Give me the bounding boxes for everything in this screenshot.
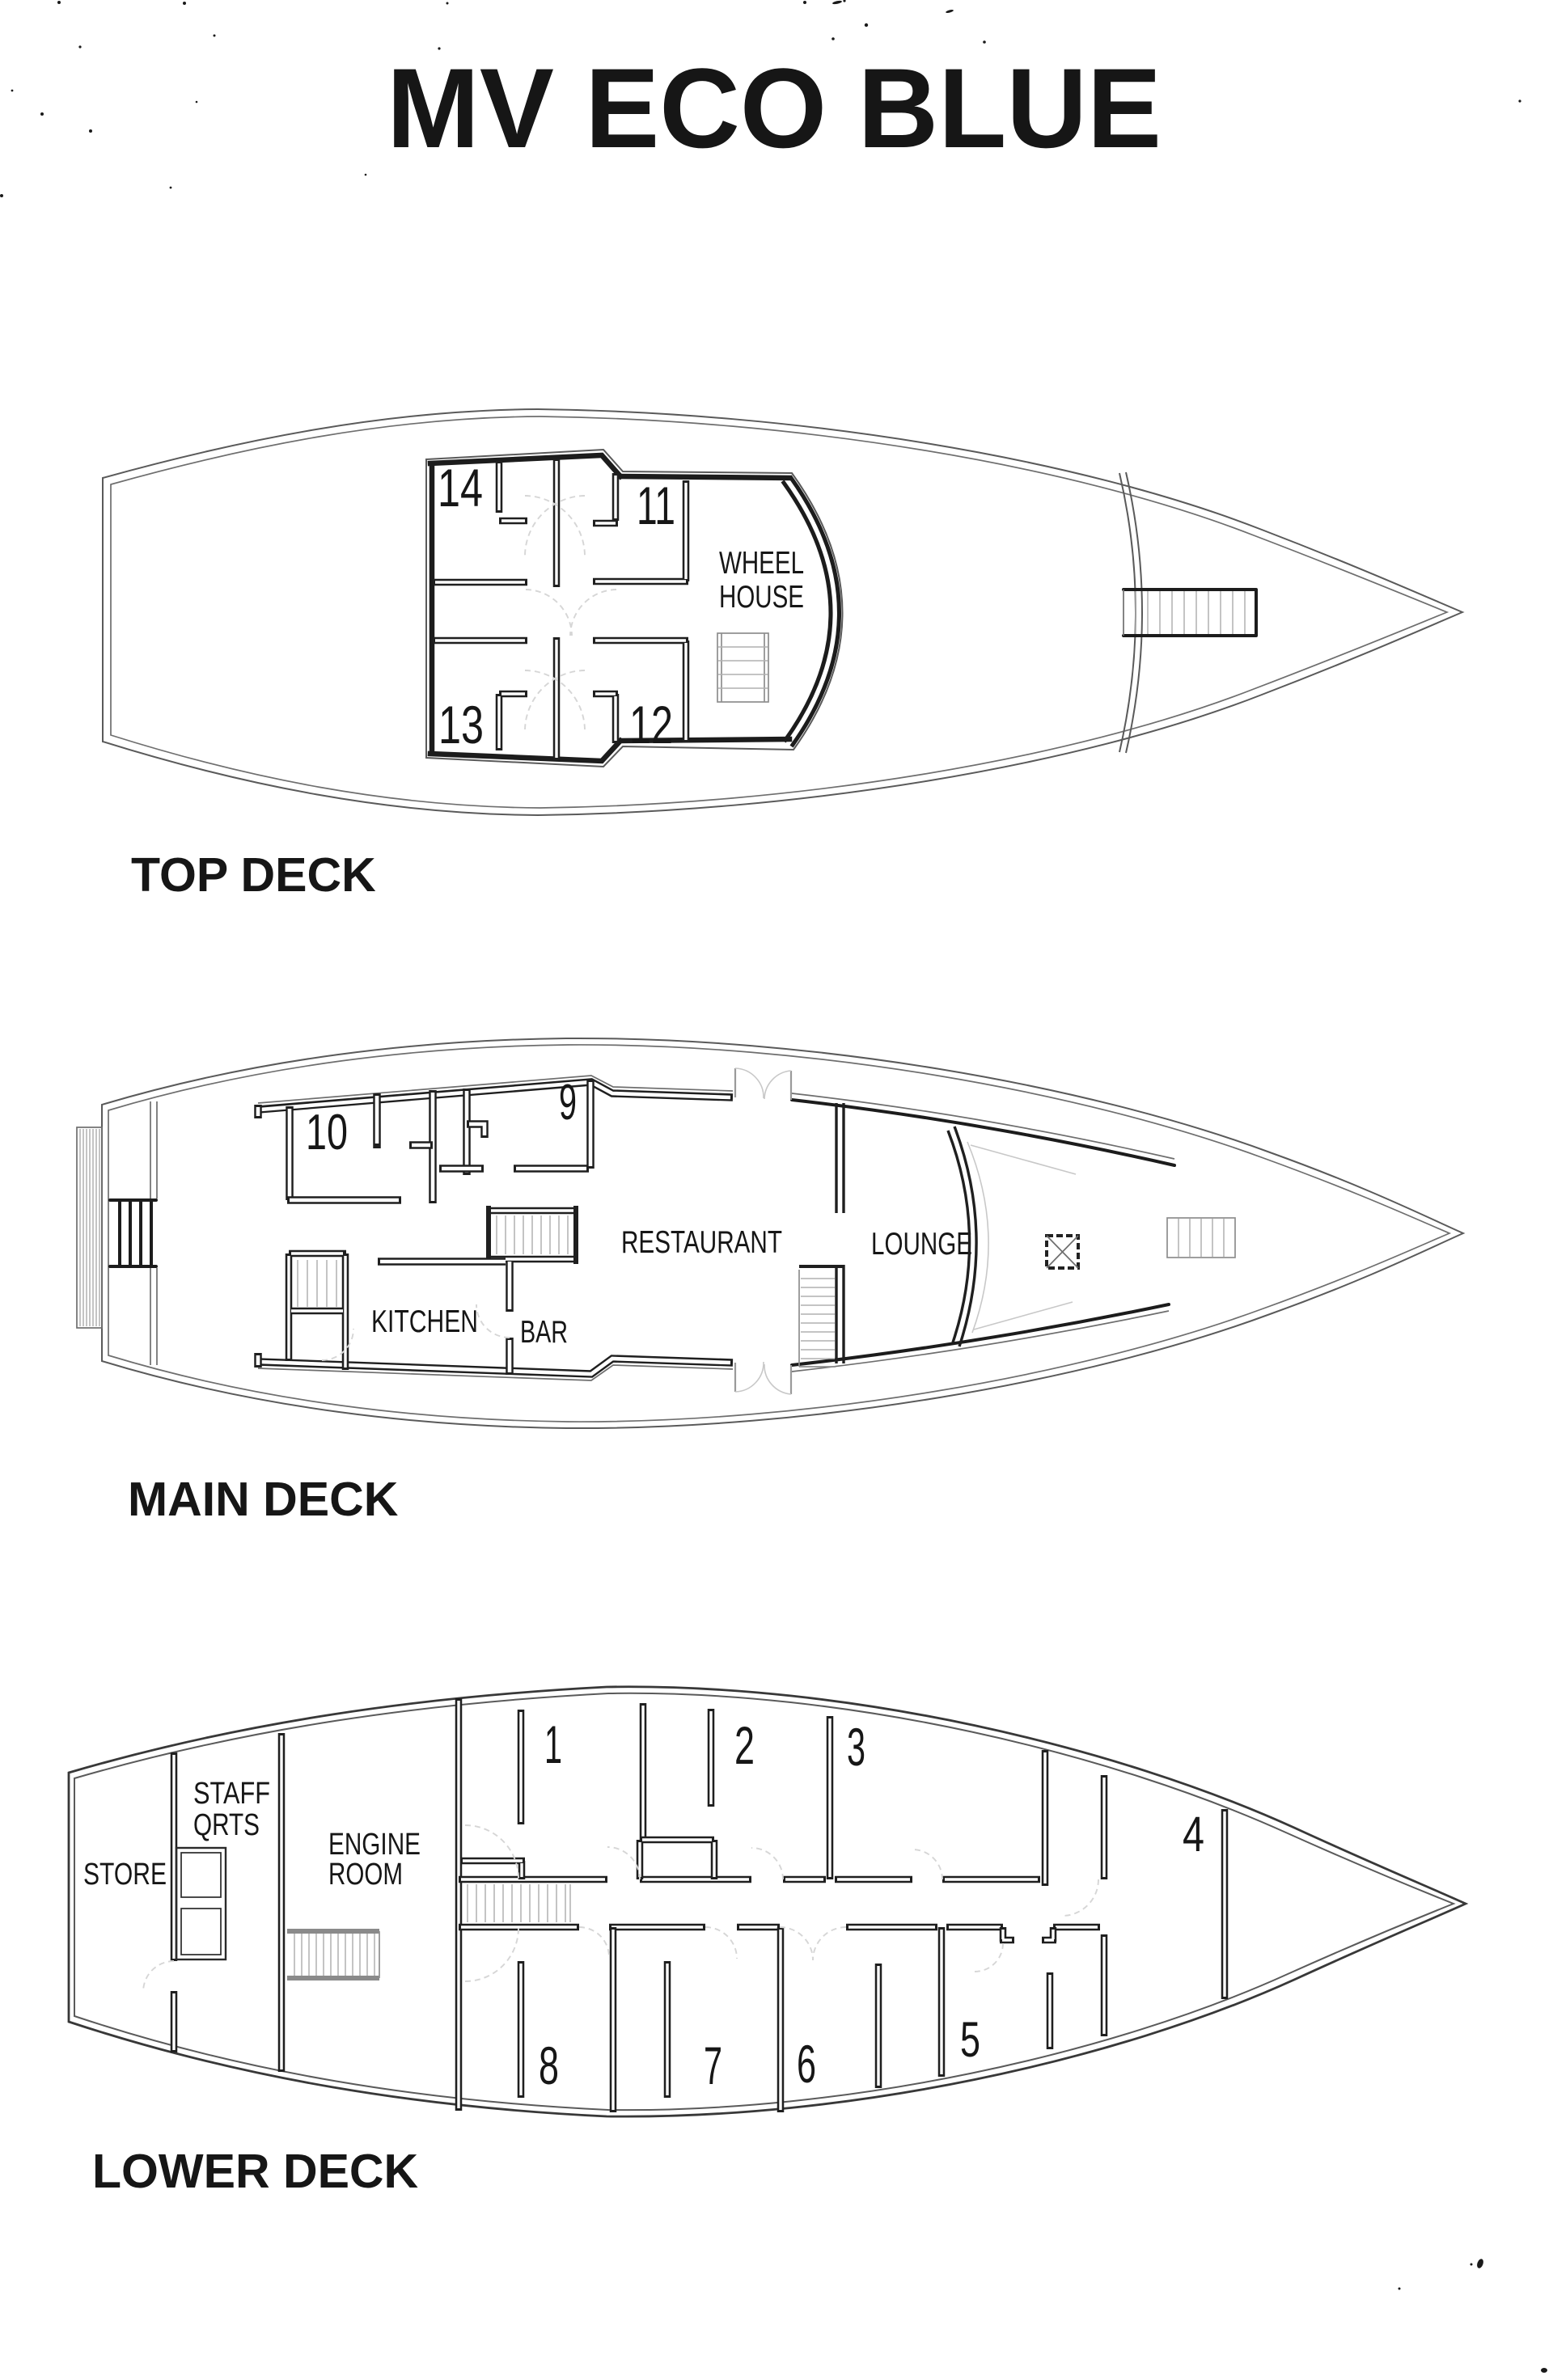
svg-text:MV ECO BLUE: MV ECO BLUE	[387, 44, 1162, 171]
svg-text:13: 13	[438, 695, 484, 755]
svg-text:4: 4	[1183, 1807, 1204, 1862]
svg-text:10: 10	[306, 1105, 348, 1160]
svg-text:9: 9	[559, 1075, 577, 1131]
svg-text:ENGINE: ENGINE	[328, 1828, 421, 1862]
svg-text:TOP DECK: TOP DECK	[131, 848, 376, 902]
svg-text:ROOM: ROOM	[328, 1858, 403, 1892]
svg-text:1: 1	[544, 1714, 562, 1774]
svg-text:3: 3	[847, 1717, 865, 1777]
svg-text:14: 14	[438, 458, 483, 518]
svg-text:11: 11	[637, 476, 675, 535]
svg-text:KITCHEN: KITCHEN	[371, 1304, 478, 1339]
svg-text:HOUSE: HOUSE	[719, 580, 804, 615]
svg-text:5: 5	[960, 2012, 980, 2067]
svg-text:QRTS: QRTS	[193, 1808, 260, 1842]
svg-text:7: 7	[704, 2035, 722, 2095]
svg-text:LOUNGE: LOUNGE	[871, 1227, 972, 1262]
svg-text:WHEEL: WHEEL	[719, 546, 804, 581]
svg-text:8: 8	[539, 2035, 559, 2095]
svg-text:BAR: BAR	[520, 1315, 568, 1350]
svg-text:RESTAURANT: RESTAURANT	[621, 1225, 782, 1260]
svg-text:STAFF: STAFF	[193, 1777, 270, 1811]
svg-text:2: 2	[734, 1715, 755, 1775]
svg-text:LOWER DECK: LOWER DECK	[92, 2145, 419, 2198]
svg-text:12: 12	[629, 695, 673, 755]
svg-text:6: 6	[797, 2034, 816, 2094]
svg-text:MAIN DECK: MAIN DECK	[128, 1473, 399, 1526]
svg-text:STORE: STORE	[83, 1858, 167, 1892]
